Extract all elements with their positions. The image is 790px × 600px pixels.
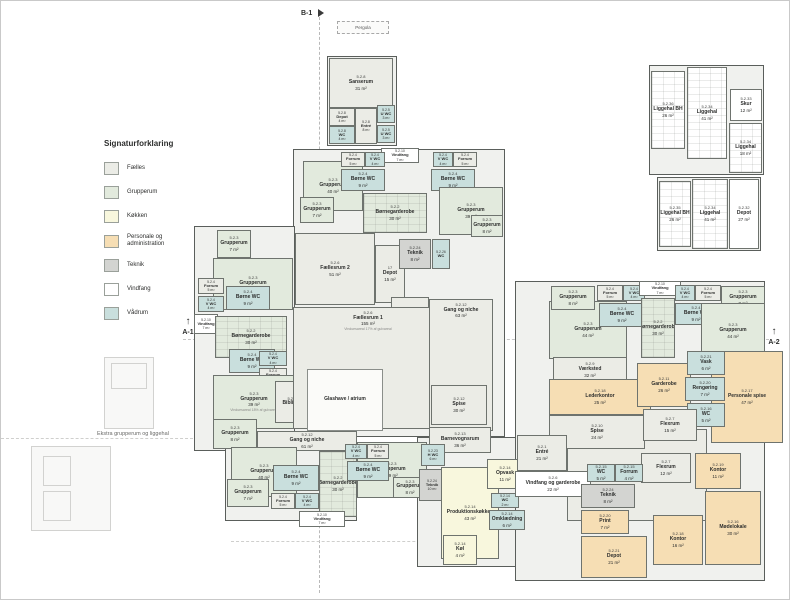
room-area: 9 m²	[359, 183, 368, 188]
room-reng-ring: 5.2.20Rengøring7 m²	[685, 377, 725, 401]
room-lederkontor: 5.2.18Lederkontor25 m²	[549, 379, 651, 415]
room-area: 51 m²	[329, 272, 341, 277]
room-area: 32 m²	[584, 373, 596, 378]
room-area: 4 m²	[440, 162, 447, 166]
room-area: 26 m²	[658, 388, 670, 393]
room-vask: 5.2.21Vask6 m²	[687, 351, 725, 375]
room-area: 6 m²	[702, 366, 711, 371]
room-area: 21 m²	[536, 456, 548, 461]
room-area: 43 m²	[464, 516, 476, 521]
room-area: 4 m²	[631, 295, 638, 299]
section-marker-b1: B-1	[301, 9, 324, 17]
room-forrum: 5.2.4Forrum5 m²	[453, 152, 477, 167]
room-name: Glashave / atrium	[324, 397, 366, 403]
up-arrow-icon: ↑	[763, 327, 785, 337]
room-area: 4 m²	[372, 162, 379, 166]
legend-swatch	[104, 162, 119, 175]
room-kontor: 5.2.19Kontor11 m²	[695, 453, 741, 489]
room-area: 3 m²	[383, 136, 390, 140]
room-vindfang: 5.2.10Vindfang7 m²	[381, 148, 419, 163]
room-area: 15 m²	[384, 277, 396, 282]
room-liggehal: 5.2.34Liggehal41 m²	[687, 67, 727, 159]
legend-title: Signaturforklaring	[104, 139, 224, 148]
room-area: 15 m²	[664, 428, 676, 433]
room-area: 7 m²	[230, 247, 239, 252]
room-v-wc: 5.2.4V WC4 m²	[259, 351, 287, 366]
room-area: 30 m²	[389, 216, 401, 221]
room-kontor: 5.2.18Kontor16 m²	[653, 515, 703, 565]
room-b-rnegarderobe: 5.2.2Børnegarderobe30 m²	[641, 298, 675, 358]
room-area: 8 m²	[363, 128, 370, 132]
room-area: 44 m²	[582, 333, 594, 338]
room-forrum: 5.2.4Forrum5 m²	[198, 278, 224, 294]
room-area: 2 m²	[502, 503, 509, 507]
pergola-outline: Pergola	[337, 21, 389, 34]
room-area: 11 m²	[712, 474, 723, 479]
room-u-wc: 5.2.5U WC3 m²	[377, 105, 395, 123]
room-v-wc: 5.2.4V WC4 m²	[433, 152, 453, 167]
room-area: 6 m²	[430, 457, 437, 461]
room-v-wc: 5.2.4V WC4 m²	[675, 285, 695, 301]
room-area: 5 m²	[597, 476, 606, 481]
room-area: 4 m²	[625, 476, 634, 481]
room-k-l: 5.2.14Køl4 m²	[443, 535, 477, 565]
room-flexrum: 5.2.7Flexrum12 m²	[641, 453, 691, 483]
room-area: 21 m²	[608, 560, 620, 565]
room-b-rne-wc: 5.2.4Børne WC9 m²	[599, 303, 645, 327]
room-area: 24 m²	[591, 435, 603, 440]
room-area: 5 m²	[705, 295, 712, 299]
room-teknik: 5.2.24Teknik8 m²	[399, 239, 431, 269]
room-area: 5 m²	[607, 295, 614, 299]
room-flexrum: 5.2.7Flexrum15 m²	[643, 409, 697, 441]
room-area: 9 m²	[618, 318, 627, 323]
room-area: 12 m²	[740, 108, 752, 113]
room-area: 5 m²	[350, 162, 357, 166]
room-area: 5 m²	[462, 162, 469, 166]
room-liggehal-bh: 5.2.35Liggehal BH26 m²	[659, 181, 691, 247]
room-area: 5 m²	[375, 454, 382, 458]
room-area: 41 m²	[704, 217, 716, 222]
room-entr: 5.2.1Entré21 m²	[517, 435, 567, 471]
legend-swatch	[104, 210, 119, 223]
room-v-wc: 5.2.4V WC4 m²	[365, 152, 385, 167]
legend-label: Personale og administration	[127, 234, 197, 248]
room-area: 5 m²	[702, 418, 711, 423]
room-depot: 5.2.32Depot27 m²	[729, 179, 759, 249]
section-marker-a2-label: A-2	[768, 339, 779, 346]
legend-label: Vindfang	[127, 286, 197, 293]
room-spise: 5.2.12Spise30 m²	[431, 385, 487, 425]
room-area: 27 m²	[738, 217, 750, 222]
legend-item-grupperum: Grupperum	[104, 186, 224, 199]
room-grupperum: 5.2.3Grupperum8 m²	[551, 286, 595, 310]
room-area: 4 m²	[270, 361, 277, 365]
room-note: Vinduesareal 17% af gulvareal	[344, 327, 391, 331]
room-area: 9 m²	[292, 481, 301, 486]
room-b-rne-wc: 5.2.4Børne WC9 m²	[273, 465, 319, 491]
room-grupperum: 5.2.3Grupperum7 m²	[217, 230, 251, 258]
room-forrum: 5.2.4Forrum5 m²	[597, 285, 623, 301]
room-forrum: 5.2.15Forrum4 m²	[615, 464, 643, 482]
room-area: 36 m²	[454, 443, 466, 448]
room-area: 26 m²	[669, 217, 681, 222]
room-area: 12 m²	[660, 471, 672, 476]
room-area: 7 m²	[601, 525, 610, 530]
room-area: 9 m²	[248, 364, 257, 369]
legend-swatch	[104, 259, 119, 272]
room-area: 22 m²	[547, 487, 559, 492]
room-note: Vinduesareal 18% af gulvareal	[230, 408, 277, 412]
room-area: 4 m²	[304, 503, 311, 507]
legend-swatch	[104, 186, 119, 199]
section-marker-b1-label: B-1	[301, 10, 312, 17]
room-wc: 5.2.8WC4 m²	[329, 126, 355, 144]
room-vindfang-og-garderobe: 5.2.6Vindfang og garderobe22 m²	[515, 471, 591, 497]
room-area: 16 m²	[672, 543, 684, 548]
room-area: 5 m²	[280, 503, 287, 507]
room-area: 4 m²	[682, 295, 689, 299]
room-area: 30 m²	[453, 408, 465, 413]
room-area: 7 m²	[203, 326, 210, 330]
legend-item-f-lles: Fælles	[104, 162, 224, 175]
room-sanserum: 5.2.8Sanserum31 m²	[329, 58, 393, 108]
room-area: 61 m²	[301, 444, 313, 449]
room-area: 8 m²	[483, 229, 492, 234]
legend-swatch	[104, 307, 119, 320]
pergola-label: Pergola	[355, 25, 371, 30]
room-f-llesrum-2: 5.2.6Fællesrum 251 m²	[295, 233, 375, 305]
room-area: 7 m²	[657, 291, 664, 295]
legend-swatch	[104, 235, 119, 248]
room-area: 8 m²	[569, 301, 578, 306]
legend-label: Køkken	[127, 213, 197, 220]
context-building-outline	[111, 363, 147, 389]
room-area: 4 m²	[208, 306, 215, 310]
section-arrow-icon	[318, 9, 324, 17]
room-wc: 5.2.15WC5 m²	[587, 464, 615, 482]
room-area: 40 m²	[327, 189, 339, 194]
room-print: 5.2.20Print7 m²	[581, 510, 629, 534]
room-forrum: 5.2.4Forrum5 m²	[695, 285, 721, 301]
room-forrum: 5.2.4Forrum5 m²	[271, 493, 295, 509]
room-garderobe: 5.2.11Garderobe26 m²	[637, 363, 691, 407]
room-m-delokale: 5.2.16Mødelokale30 m²	[705, 491, 761, 565]
room-area: 47 m²	[741, 400, 753, 405]
room-area: 7 m²	[701, 392, 710, 397]
room-vindfang: 5.2.10Vindfang7 m²	[299, 511, 345, 527]
room-liggehal: 5.2.34Liggehal18 m²	[729, 123, 762, 173]
room-wc: 5.2.26WC	[432, 239, 450, 269]
room-h-wc: 5.2.23H WC6 m²	[421, 444, 445, 466]
section-marker-a2: ↑ A-2	[763, 327, 785, 346]
extra-building-caption: Ekstra grupperum og liggehal	[97, 431, 197, 437]
room-name: WC	[438, 254, 445, 259]
room-area: 30 m²	[245, 340, 257, 345]
room-area: 9 m²	[692, 317, 701, 322]
room-area: 4 m²	[353, 454, 360, 458]
room-area: 8 m²	[406, 490, 415, 495]
legend-swatch	[104, 283, 119, 296]
room-skur: 5.2.33Skur12 m²	[730, 89, 762, 121]
room-glashave-atrium: Glashave / atrium	[307, 369, 383, 431]
room-depot: 5.2.8Depot4 m²	[329, 108, 355, 126]
room-b-rnegarderobe: 5.2.2Børnegarderobe30 m²	[363, 193, 427, 233]
room-area: 44 m²	[727, 334, 739, 339]
room-area: 8 m²	[411, 257, 420, 262]
room-b-rne-wc: 5.2.4Børne WC9 m²	[226, 286, 270, 310]
room-area: 30 m²	[332, 487, 344, 492]
room-liggehal-bh: 5.2.36Liggehal BH26 m²	[651, 71, 685, 149]
room-area: 4 m²	[339, 137, 346, 141]
room-area: 5 m²	[208, 288, 215, 292]
room-area: 63 m²	[455, 313, 467, 318]
room-area: 26 m²	[662, 113, 674, 118]
room-area: 6 m²	[503, 523, 512, 528]
legend-label: Grupperum	[127, 189, 197, 196]
legend-label: Vådrum	[127, 310, 197, 317]
room-omkl-dning: 5.2.14Omklædning6 m²	[489, 510, 525, 530]
context-building-outline	[43, 456, 71, 486]
room-area: 18 m²	[740, 151, 752, 156]
room-area: 3 m²	[383, 116, 390, 120]
room-v-wc: 5.2.4V WC4 m²	[345, 444, 367, 459]
room-area: 7 m²	[397, 158, 404, 162]
room-u-wc: 5.2.5U WC3 m²	[377, 125, 395, 143]
room-area: 7 m²	[313, 213, 322, 218]
room-entr: 5.2.8Entré8 m²	[355, 108, 377, 144]
room-v-wc: 5.2.4V WC4 m²	[295, 493, 319, 509]
room-grupperum: 5.2.3Grupperum7 m²	[300, 197, 334, 223]
site-line	[1, 438, 193, 439]
room-area: 25 m²	[594, 400, 606, 405]
room-area: 4 m²	[339, 119, 346, 123]
room-grupperum: 5.2.3Grupperum7 m²	[227, 479, 269, 507]
room-forrum: 5.2.4Forrum5 m²	[341, 152, 365, 167]
room-area: 30 m²	[727, 531, 739, 536]
legend-label: Teknik	[127, 262, 197, 269]
room-area: 8 m²	[231, 437, 240, 442]
room-v-wc: 5.2.4V WC4 m²	[198, 296, 224, 312]
room-area: 41 m²	[701, 116, 713, 121]
room-area: 30 m²	[652, 331, 664, 336]
room-area: 10 m²	[428, 487, 437, 491]
room-grupperum: 5.2.3Grupperum8 m²	[471, 215, 503, 237]
room-liggehal: 5.2.34Liggehal41 m²	[692, 179, 728, 249]
legend-item-k-kken: Køkken	[104, 210, 224, 223]
room-depot: 5.2.21Depot21 m²	[581, 536, 647, 578]
context-building-outline	[43, 491, 71, 521]
room-area: 11 m²	[499, 477, 510, 482]
room-area: 9 m²	[364, 474, 373, 479]
room-b-rne-wc: 5.2.4Børne WC9 m²	[347, 461, 389, 481]
room-area: 4 m²	[456, 553, 465, 558]
room-area: 8 m²	[604, 499, 613, 504]
floor-plan-sheet: B-1 Pergola ↑ A-1 ↑ A-2 Signaturforklari…	[0, 0, 790, 600]
room-area: 7 m²	[244, 496, 253, 501]
room-area: 7 m²	[319, 521, 326, 525]
room-teknik: 5.2.24Teknik8 m²	[581, 484, 635, 508]
room-b-rne-wc: 5.2.4Børne WC9 m²	[341, 169, 385, 191]
room-forrum: 5.2.4Forrum5 m²	[367, 444, 389, 459]
legend-label: Fælles	[127, 165, 197, 172]
room-area: 9 m²	[244, 301, 253, 306]
room-grupperum: 5.2.3Grupperum8 m²	[213, 419, 257, 449]
room-area: 31 m²	[355, 86, 367, 91]
